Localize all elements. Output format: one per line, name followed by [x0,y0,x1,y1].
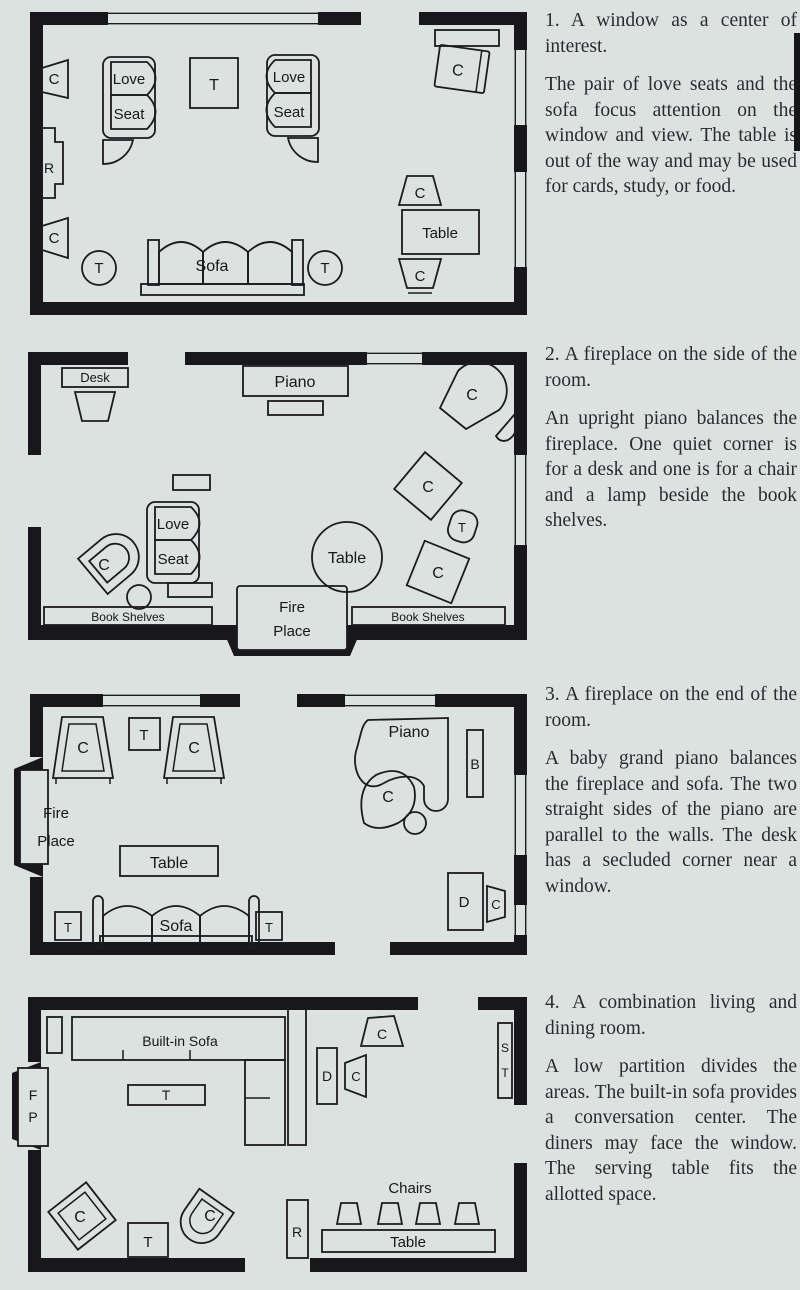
lamp [127,585,151,609]
floor-plan-2: Fire Place Book Shelves Book Shelves Des… [20,344,530,662]
chair: C [53,717,113,784]
end-table [47,1017,62,1053]
chair: C [361,771,415,828]
coffee-table: T [128,1085,205,1105]
pouf: T [445,507,480,545]
chair-label: C [415,268,426,285]
radio-cabinet: R [42,128,63,198]
seat-label: Seat [274,104,306,121]
floor-plan-1: C R C Love Seat T Love Seat [20,4,536,320]
chair-label: C [415,185,426,202]
chair-label: C [382,789,394,806]
window [514,775,527,855]
dining-chair [378,1203,402,1224]
window [345,694,435,707]
chair: C [399,176,441,205]
caption-1-body: The pair of love seats and the sofa focu… [545,72,797,200]
piano-bench [268,401,323,415]
caption-4-heading: 4. A combination living and dining room. [545,990,797,1041]
piano: Piano [243,366,348,396]
chair: C [42,218,68,258]
coffee-table: Table [120,846,218,876]
chair: C [78,525,148,594]
table-label: Table [328,550,366,567]
table-label: T [143,1234,152,1251]
caption-3: 3. A fireplace on the end of the room. A… [545,682,797,899]
caption-3-body: A baby grand piano balances the fireplac… [545,746,797,899]
window [514,172,527,267]
ottoman [496,415,516,441]
table-label: T [209,77,219,94]
bench-label: B [470,756,479,772]
chair: C [42,60,68,98]
caption-2-body: An upright piano balances the fireplace.… [545,406,797,534]
chair-label: C [466,387,478,404]
desk: D [448,873,483,930]
wall-left [28,997,41,1062]
desk: Desk [62,368,128,387]
fireplace-f-label: F [29,1087,38,1103]
door-swing [288,138,318,162]
chair-label: C [77,740,89,757]
place-label: Place [37,833,75,850]
table-label: Table [422,225,458,242]
table-label: T [458,520,466,535]
caption-1-heading: 1. A window as a center of interest. [545,8,797,59]
chair-label: C [432,565,444,582]
occasional-table: T [55,912,81,940]
table-label: Table [390,1234,426,1251]
love-seat: Love Seat [267,55,320,136]
bench: B [467,730,483,797]
fire-label: Fire [279,599,305,616]
love-label: Love [113,71,146,88]
desk [435,30,499,46]
desk-label: D [322,1068,332,1084]
wall-left [30,12,43,315]
piano-label: Piano [275,374,316,391]
fire-label: Fire [43,805,69,822]
table-label: T [320,260,329,277]
desk-chair: C [345,1055,366,1097]
grand-piano: Piano [355,718,448,811]
piano-label: Piano [389,724,430,741]
serving-table: S T [498,1023,512,1098]
card-table: Table [402,210,479,254]
table-label: T [162,1087,171,1103]
occasional-table: T [129,718,160,750]
table-label: T [265,920,273,935]
occasional-table: T [190,58,238,108]
wall-top [28,352,128,365]
desk: D [317,1048,337,1104]
fireplace: F P [18,1068,48,1146]
page-edge-mark [794,33,800,151]
love-label: Love [157,516,190,533]
floor-plan-3: Fire Place C T C Table [8,684,530,968]
wall-top [28,997,418,1010]
fireplace: Fire Place [237,586,347,650]
window [514,905,527,935]
occasional-table: T [128,1223,168,1257]
table-label: T [139,727,148,744]
side-table [173,475,210,490]
dining-table: Table [322,1230,495,1252]
chair: C [48,1182,115,1249]
love-seat: Love Seat [103,57,156,138]
window [103,694,200,707]
round-table: T [82,251,116,285]
door-opening [361,10,419,27]
seat-label: Seat [158,551,190,568]
chair-label: C [204,1208,216,1225]
desk-chair [75,392,115,421]
sofa-label: Sofa [196,258,229,275]
chair-label: C [351,1069,360,1084]
door-swing [103,140,133,164]
dining-chair [337,1203,361,1224]
sofa: Sofa [93,896,259,948]
caption-4-body: A low partition divides the areas. The b… [545,1054,797,1207]
window [367,352,422,365]
chair: C [361,1016,403,1046]
chair-label: C [49,230,60,247]
chairs-label: Chairs [388,1180,431,1197]
wall-bottom [390,942,527,955]
chair: C [164,717,224,784]
chair: C [440,362,507,429]
chair-label: C [451,62,465,80]
book-page: C R C Love Seat T Love Seat [0,0,800,1290]
partition [288,1009,306,1145]
wall-left [28,1150,41,1272]
caption-2: 2. A fireplace on the side of the room. … [545,342,797,534]
desk-chair: C [434,45,489,94]
caption-1: 1. A window as a center of interest. The… [545,8,797,200]
chair-label: C [377,1026,387,1042]
wall-left [28,527,41,640]
book-shelves: Book Shelves [44,607,212,625]
serving-t-label: T [501,1066,509,1080]
wall-right [514,1163,527,1272]
desk-chair: C [487,886,505,922]
wall-right [514,997,527,1105]
window [514,50,527,125]
chair: C [407,541,469,603]
radio-label: R [292,1224,302,1240]
chair: C [394,452,462,520]
chair-label: C [98,557,110,574]
floor-plan-4: F P Built-in Sofa T D C C [8,992,534,1288]
round-table: T [308,251,342,285]
caption-3-heading: 3. A fireplace on the end of the room. [545,682,797,733]
side-table [168,583,212,597]
chair-label: C [188,740,200,757]
built-in-sofa: Built-in Sofa [72,1017,285,1145]
fireplace: Fire Place [20,770,75,864]
book-shelves-label: Book Shelves [91,610,164,624]
radio-cabinet: R [287,1200,308,1258]
wall-bottom [30,302,527,315]
table-label: T [94,260,103,277]
table-label: Table [150,855,188,872]
walls [14,694,527,955]
book-shelves-label: Book Shelves [391,610,464,624]
love-label: Love [273,69,306,86]
wall-left [30,694,43,757]
built-in-sofa-label: Built-in Sofa [142,1033,218,1049]
fireplace-p-label: P [28,1109,37,1125]
seat-label: Seat [114,106,146,123]
sofa: Sofa [141,240,304,295]
love-seat: Love Seat [147,502,200,583]
caption-4: 4. A combination living and dining room.… [545,990,797,1207]
chair: C [172,1189,233,1252]
chair-label: C [49,71,60,88]
dining-chair [416,1203,440,1224]
wall-bottom [28,1258,245,1272]
radio-label: R [44,160,54,176]
round-table: Table [312,522,382,592]
caption-2-heading: 2. A fireplace on the side of the room. [545,342,797,393]
chair: C [399,259,441,293]
chair-label: C [422,479,434,496]
chair-label: C [491,897,500,912]
place-label: Place [273,623,311,640]
desk-label: Desk [80,370,110,385]
chair-label: C [74,1209,86,1226]
table-label: T [64,920,72,935]
wall-left [28,352,41,455]
desk-label: D [459,894,470,911]
window [108,12,318,25]
sofa-label: Sofa [160,918,193,935]
dining-chair [455,1203,479,1224]
window [514,455,527,545]
stool [404,812,426,834]
wall-bottom [310,1258,527,1272]
serving-s-label: S [501,1041,509,1055]
book-shelves: Book Shelves [352,607,505,625]
